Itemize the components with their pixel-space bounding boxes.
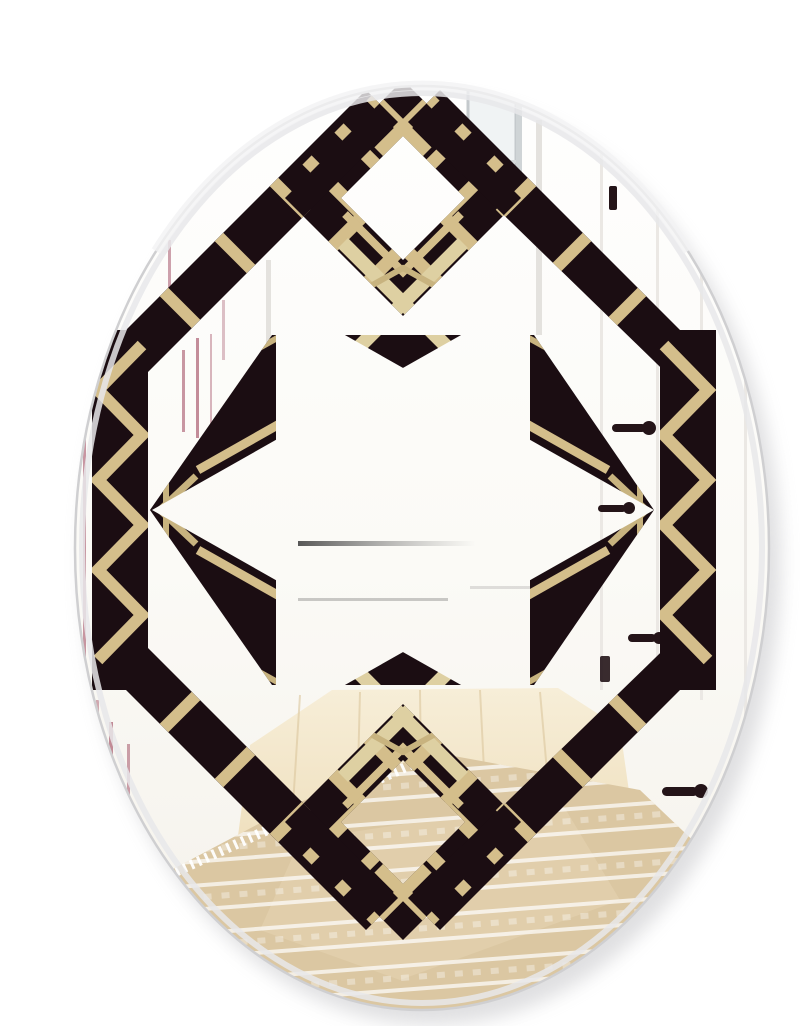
mirror-product-image bbox=[0, 0, 800, 1026]
picture-frame-line bbox=[222, 300, 225, 360]
picture-frame-line bbox=[127, 744, 130, 860]
door-seam bbox=[744, 160, 747, 720]
door-handle bbox=[609, 186, 617, 210]
door-seam bbox=[600, 150, 603, 690]
product-photo bbox=[0, 0, 800, 1026]
picture-frame-line bbox=[196, 338, 199, 438]
picture-frame-line bbox=[96, 700, 99, 868]
door-hinge bbox=[600, 656, 610, 682]
picture-frame-line bbox=[182, 350, 185, 432]
